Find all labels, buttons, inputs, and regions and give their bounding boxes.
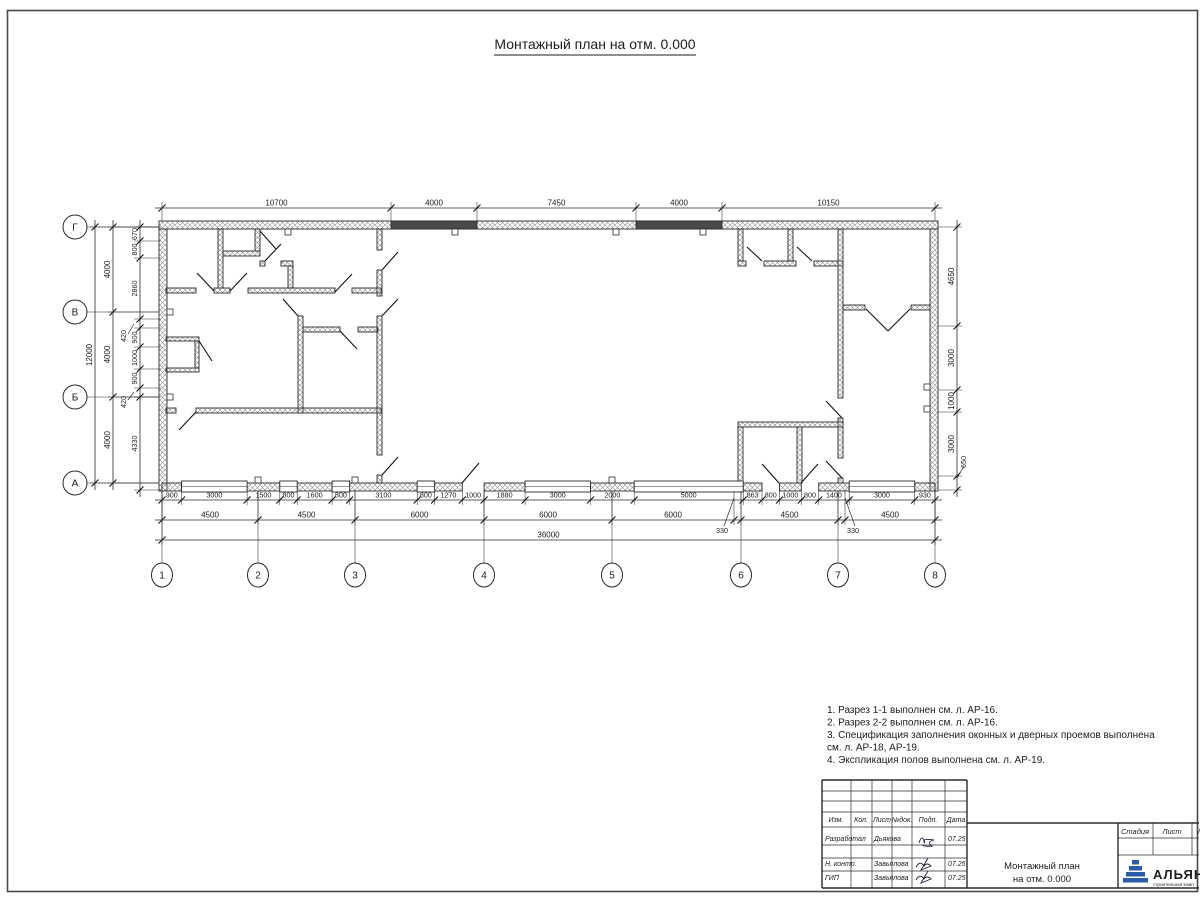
- tb-name: Завьялова: [874, 861, 909, 868]
- dimension-label: 670: [130, 228, 139, 240]
- note-line: 2. Разрез 2-2 выполнен см. л. АР-16.: [827, 718, 998, 729]
- logo-tagline: строительная комп: [1153, 882, 1194, 887]
- axis-label: 5: [609, 571, 615, 582]
- dimension-label: 3000: [206, 491, 222, 500]
- dimension-label: 900: [166, 491, 178, 500]
- wall-segment: [377, 229, 382, 250]
- door-leaf: [340, 331, 357, 349]
- dimension-label: 900: [130, 332, 139, 344]
- dimension-label: 1600: [307, 491, 323, 500]
- door-leaf: [230, 273, 247, 291]
- door-leaf: [826, 401, 842, 418]
- dimension-label: 4000: [425, 199, 443, 208]
- wall-solid-segment: [636, 221, 722, 229]
- company-logo: АЛЬЯН строительная комп: [1123, 860, 1200, 887]
- dimension-label: 4650: [947, 267, 956, 285]
- door-leaf: [888, 309, 910, 331]
- tb-date: 07.25: [948, 836, 966, 843]
- column-mark: [285, 229, 291, 235]
- column-mark: [609, 477, 615, 483]
- dimension-label: 4330: [130, 436, 139, 452]
- dimension-label: 1400: [826, 491, 842, 500]
- tb-role: Н. контр.: [825, 861, 857, 868]
- door-leaf: [283, 299, 298, 316]
- column-mark: [700, 229, 706, 235]
- tb-date: 07.25: [948, 875, 966, 882]
- wall-segment: [214, 288, 230, 293]
- dimension-label: 4500: [201, 511, 219, 520]
- dimension-label: 650: [959, 456, 968, 468]
- axis-label: 7: [835, 571, 841, 582]
- dimension-label: 4000: [670, 199, 688, 208]
- door-leaf: [260, 231, 276, 249]
- tb-col-data: Дата: [946, 817, 966, 824]
- door-leaf: [199, 341, 212, 361]
- dimension-label: 3000: [947, 349, 956, 367]
- floor-plan: 1070040007450400010150900300015008001600…: [63, 199, 968, 588]
- dimension-label: 4500: [881, 511, 899, 520]
- door-leaf: [826, 461, 842, 478]
- column-mark: [167, 309, 173, 315]
- door-leaf: [797, 247, 812, 261]
- wall-segment: [255, 229, 260, 251]
- wall-segment: [298, 316, 303, 413]
- dimension-label: 36000: [537, 531, 560, 540]
- door-leaf: [197, 273, 214, 291]
- wall-segment: [797, 427, 802, 483]
- wall-segment: [281, 261, 293, 266]
- note-line: см. л. АР-18, АР-19.: [827, 743, 920, 754]
- door-leaf: [335, 274, 352, 292]
- axis-label: 1: [159, 571, 165, 582]
- dimension-label: 6000: [411, 511, 429, 520]
- tb-name: Дьякова: [873, 836, 901, 843]
- wall-segment: [764, 261, 796, 266]
- wall-segment: [196, 408, 381, 413]
- door-leaf: [747, 247, 762, 261]
- door-leaf: [382, 252, 398, 270]
- wall-segment: [838, 229, 843, 398]
- wall-segment: [166, 288, 196, 293]
- wall-segment: [260, 261, 265, 266]
- axis-label: 4: [481, 571, 487, 582]
- door-leaf: [866, 309, 888, 331]
- column-mark: [452, 229, 458, 235]
- column-mark: [924, 406, 930, 412]
- axis-label: Г: [72, 223, 78, 234]
- tb-col-podp: Подп.: [919, 816, 938, 824]
- dimension-label: 6000: [664, 511, 682, 520]
- dimension-label: 800: [283, 491, 295, 500]
- wall-segment: [838, 478, 843, 483]
- door-leaf: [801, 464, 818, 483]
- logo-text: АЛЬЯН: [1153, 867, 1200, 882]
- axis-label: А: [72, 479, 79, 490]
- dimension-label: 330: [847, 526, 859, 535]
- dimension-label: 1270: [440, 491, 456, 500]
- dimension-label: 12000: [85, 343, 94, 366]
- wall-segment: [358, 327, 378, 332]
- column-mark: [255, 477, 261, 483]
- note-line: 1. Разрез 1-1 выполнен см. л. АР-16.: [827, 705, 998, 716]
- wall-segment: [195, 341, 199, 368]
- dimension-label: 2860: [130, 281, 139, 297]
- tb-doc-name-line1: Монтажный план: [1004, 861, 1080, 872]
- dimension-label: 3000: [947, 435, 956, 453]
- wall-segment: [166, 337, 199, 341]
- column-mark: [352, 477, 358, 483]
- door-leaf: [762, 464, 779, 483]
- tb-stage: Стадия: [1121, 827, 1149, 836]
- dimension-label: 330: [716, 526, 728, 535]
- dimension-label: 6000: [539, 511, 557, 520]
- dimension-label: 7450: [548, 199, 566, 208]
- dimension-label: 1880: [497, 491, 513, 500]
- axis-label: 6: [738, 571, 744, 582]
- leader-line: [128, 392, 134, 400]
- wall-segment: [930, 229, 938, 491]
- wall-segment: [843, 305, 865, 310]
- dimension-label: 3000: [874, 491, 890, 500]
- wall-segment: [166, 408, 176, 413]
- wall-solid-segment: [391, 221, 477, 229]
- dimension-label: 800: [130, 244, 139, 256]
- wall-segment: [166, 368, 199, 372]
- axis-label: 3: [352, 571, 358, 582]
- dimension-label: 1000: [782, 491, 798, 500]
- dimension-label: 10150: [817, 199, 840, 208]
- dimension-label: 10700: [265, 199, 288, 208]
- tb-doc-name-line2: на отм. 0.000: [1013, 874, 1071, 885]
- wall-segment: [218, 229, 223, 288]
- note-line: 4. Экспликация полов выполнена см. л. АР…: [827, 755, 1045, 766]
- title-block: Изм. Кол. Лист №док. Подп. Дата Разработ…: [822, 780, 1200, 888]
- wall-segment: [159, 221, 938, 229]
- wall-segment: [248, 288, 335, 293]
- axis-label: Б: [72, 393, 79, 404]
- dimension-label: 800: [765, 491, 777, 500]
- tb-sheet: Лист: [1161, 827, 1181, 836]
- dimension-label: 930: [919, 491, 931, 500]
- tb-sheets: Лист: [1196, 827, 1200, 836]
- dimension-label: 4500: [781, 511, 799, 520]
- dimension-label: 1000: [947, 392, 956, 410]
- wall-segment: [303, 327, 340, 332]
- column-mark: [613, 229, 619, 235]
- wall-segment: [738, 261, 746, 266]
- column-mark: [167, 394, 173, 400]
- door-leaf: [382, 457, 398, 475]
- wall-segment: [738, 427, 743, 483]
- drawing-canvas: Монтажный план на отм. 0.000 10700400074…: [0, 0, 1200, 900]
- dimension-label: 1000: [130, 350, 139, 366]
- tb-role: ГИП: [825, 875, 840, 882]
- signature: [916, 871, 931, 883]
- dimension-label: 800: [420, 491, 432, 500]
- dimension-label: 900: [130, 373, 139, 385]
- door-leaf: [179, 412, 196, 430]
- notes-block: 1. Разрез 1-1 выполнен см. л. АР-16. 2. …: [827, 705, 1155, 766]
- wall-segment: [159, 229, 167, 491]
- dimension-label: 4000: [103, 260, 112, 278]
- door-leaf: [265, 244, 281, 261]
- dimension-label: 3000: [550, 491, 566, 500]
- dimension-label: 800: [804, 491, 816, 500]
- door-leaf: [462, 463, 479, 483]
- tb-col-ndok: №док.: [892, 816, 913, 824]
- tb-name: Завьялова: [874, 875, 909, 882]
- tb-col-list: Лист: [872, 817, 891, 824]
- tb-col-kol: Кол.: [854, 817, 868, 824]
- dimension-label: 3100: [375, 491, 391, 500]
- axis-label: 2: [255, 571, 261, 582]
- tb-date: 07.25: [948, 861, 966, 868]
- dimension-label: 5000: [681, 491, 697, 500]
- dimension-label: 863: [747, 491, 759, 500]
- wall-segment: [788, 229, 793, 261]
- wall-segment: [377, 475, 382, 483]
- door-leaf: [382, 299, 398, 316]
- dimension-label: 4500: [298, 511, 316, 520]
- leader-line: [845, 498, 855, 526]
- dimension-label: 4000: [103, 345, 112, 363]
- signature: [916, 858, 931, 870]
- wall-segment: [223, 251, 260, 256]
- dimension-label: 2000: [604, 491, 620, 500]
- dimension-label: 800: [335, 491, 347, 500]
- dimension-label: 4000: [103, 431, 112, 449]
- drawing-sheet: Монтажный план на отм. 0.000 10700400074…: [0, 0, 1200, 900]
- wall-segment: [377, 316, 382, 455]
- dimension-label: 1000: [465, 491, 481, 500]
- wall-segment: [911, 305, 930, 310]
- axis-label: В: [72, 308, 79, 319]
- dimension-label: 420: [119, 330, 128, 342]
- wall-segment: [288, 266, 293, 288]
- tb-col-izm: Изм.: [829, 817, 844, 824]
- wall-segment: [738, 422, 843, 427]
- column-mark: [924, 384, 930, 390]
- wall-segment: [738, 229, 743, 261]
- dimension-label: 420: [119, 396, 128, 408]
- note-line: 3. Спецификация заполнения оконных и две…: [827, 729, 1155, 741]
- page-title: Монтажный план на отм. 0.000: [494, 36, 695, 52]
- axis-label: 8: [932, 571, 938, 582]
- wall-segment: [377, 270, 382, 296]
- tb-role: Разработал: [825, 835, 866, 843]
